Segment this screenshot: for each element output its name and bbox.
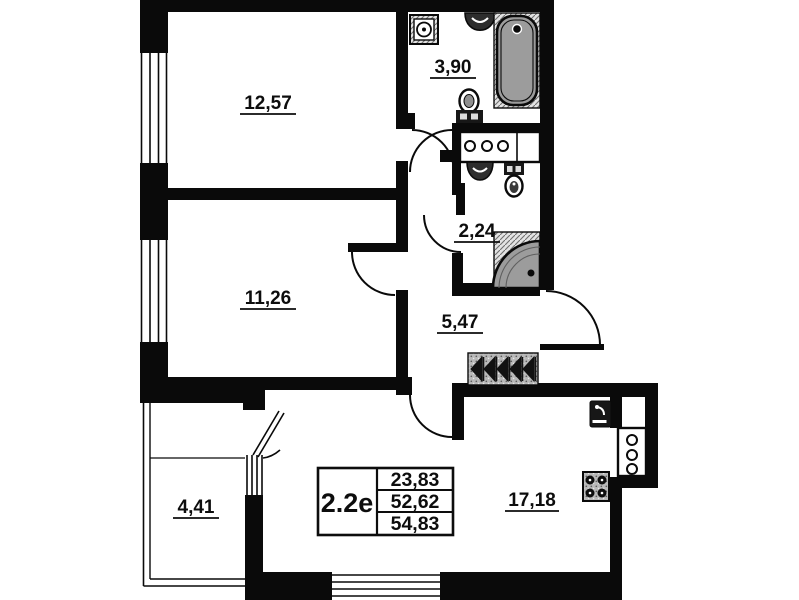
stove-icon [583,472,609,501]
label-balcony: 4,41 [178,497,215,518]
label-bedroom-2: 11,26 [245,288,292,309]
label-bathroom: 3,90 [435,57,472,78]
sink-icon [467,162,493,180]
toilet-icon [456,90,483,124]
floorplan-canvas: 12,57 3,90 11,26 2,24 5,47 4,41 17,18 2.… [0,0,799,600]
door-arc-bedroom-2 [352,252,395,295]
window-kitchen [332,575,440,596]
sink-icon [465,13,495,30]
apartment-type-label: 2.2e [321,488,374,518]
table-value-row1: 23,83 [391,469,440,491]
kitchen-sink-icon [590,401,611,427]
washing-machine-icon [410,15,438,44]
window-bedroom-1 [142,53,167,163]
balcony-outline [144,403,246,586]
bathroom-fixtures [410,13,540,123]
label-hallway: 5,47 [442,312,479,333]
table-value-row2: 52,62 [391,491,440,513]
door-arc-bedroom-1 [412,130,454,172]
label-kitchen-living: 17,18 [508,490,556,511]
floor-plan-drawing: 12,57 3,90 11,26 2,24 5,47 4,41 17,18 2.… [0,0,799,600]
toilet-icon [504,163,524,197]
door-arc-entry [546,291,600,345]
table-value-row3: 54,83 [391,513,440,535]
summary-table: 2.2e 23,83 52,62 54,83 [318,468,453,535]
window-balcony-door [247,455,262,495]
window-bedroom-2 [142,240,167,342]
door-arc-wc [424,215,461,252]
shower-icon [493,232,540,288]
label-bedroom-1: 12,57 [244,93,292,114]
balcony-door-leaf [253,411,284,458]
bathtub-icon [494,13,540,108]
kitchen-counter-icon [618,428,646,476]
vanity-counter-icon [460,132,540,162]
label-wc: 2,24 [459,221,496,242]
wc-fixtures [460,132,540,288]
door-arc-kitchen [410,395,452,437]
wardrobe-icon [468,353,538,385]
